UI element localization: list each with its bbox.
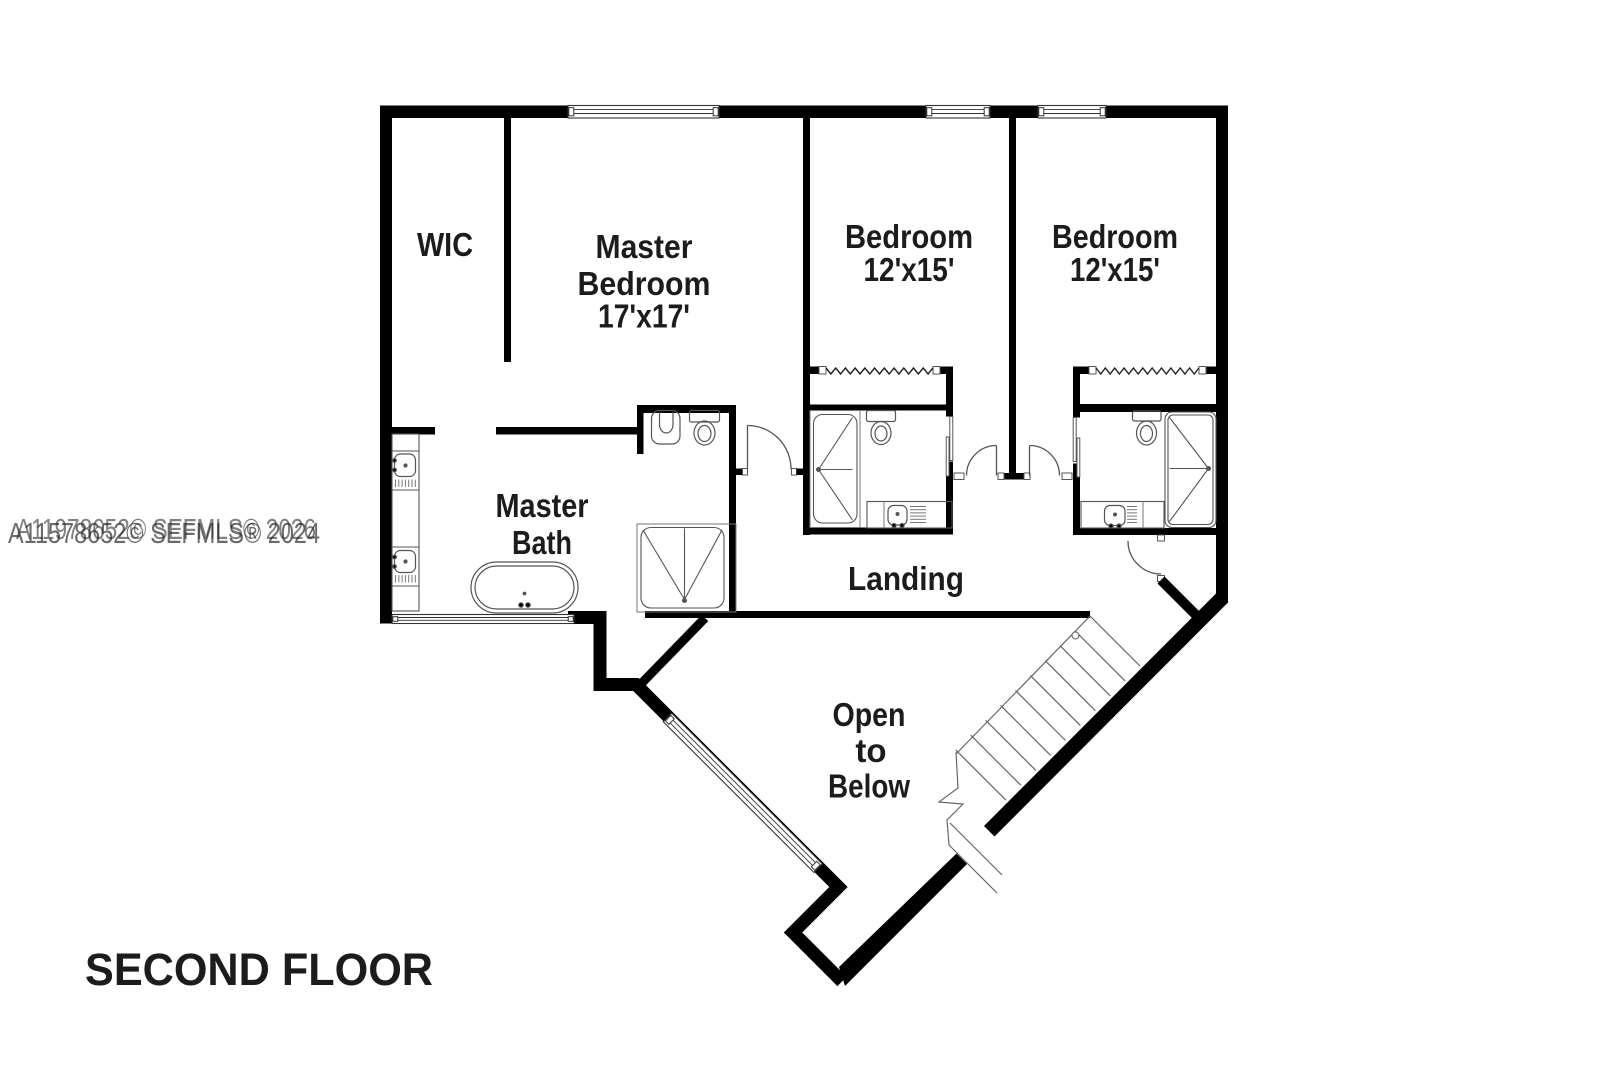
svg-text:WIC: WIC	[417, 226, 473, 263]
svg-text:Bedroom: Bedroom	[578, 265, 711, 302]
svg-text:12'x15': 12'x15'	[1070, 251, 1160, 288]
svg-text:SECOND FLOOR: SECOND FLOOR	[85, 944, 433, 995]
svg-text:A11978652© SEFMLS© 2026: A11978652© SEFMLS© 2026	[16, 514, 316, 546]
svg-text:Landing: Landing	[848, 560, 964, 597]
svg-text:Open: Open	[833, 696, 906, 733]
svg-text:Bedroom: Bedroom	[845, 218, 973, 255]
svg-text:to: to	[855, 732, 886, 769]
svg-text:Bath: Bath	[512, 524, 572, 561]
svg-text:Bedroom: Bedroom	[1052, 218, 1178, 255]
svg-text:12'x15': 12'x15'	[864, 251, 955, 288]
svg-text:Master: Master	[496, 487, 589, 524]
svg-text:Master: Master	[596, 228, 693, 265]
svg-text:17'x17': 17'x17'	[598, 298, 690, 335]
svg-text:Below: Below	[828, 768, 910, 805]
